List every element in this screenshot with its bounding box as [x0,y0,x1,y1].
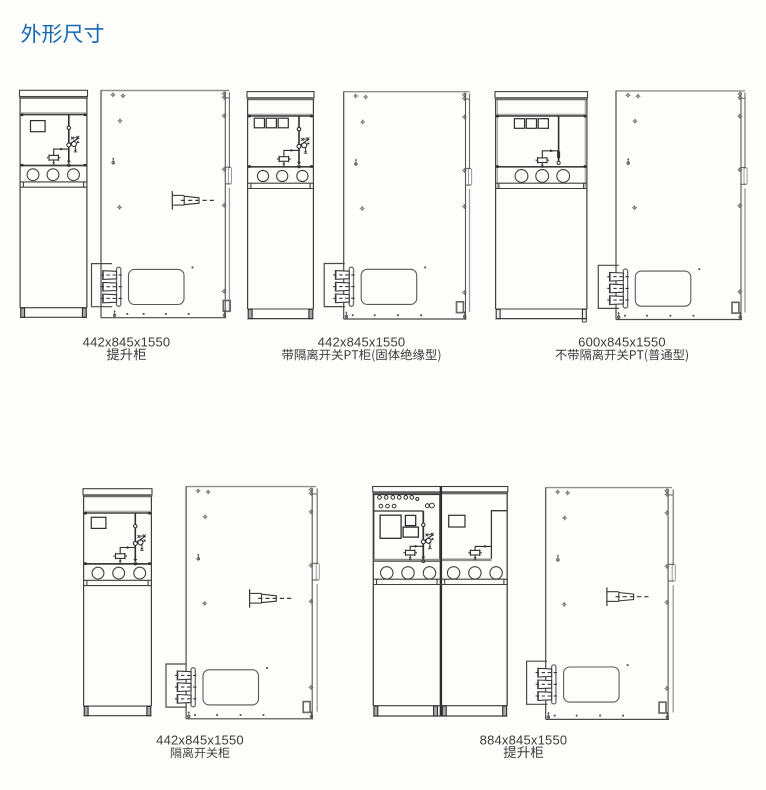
svg-text:600x845x1550: 600x845x1550 [578,335,666,350]
svg-text:442x845x1550: 442x845x1550 [83,335,171,350]
svg-text:884x845x1550: 884x845x1550 [480,732,568,747]
svg-text:442x845x1550: 442x845x1550 [318,335,406,350]
svg-text:442x845x1550: 442x845x1550 [156,732,244,747]
